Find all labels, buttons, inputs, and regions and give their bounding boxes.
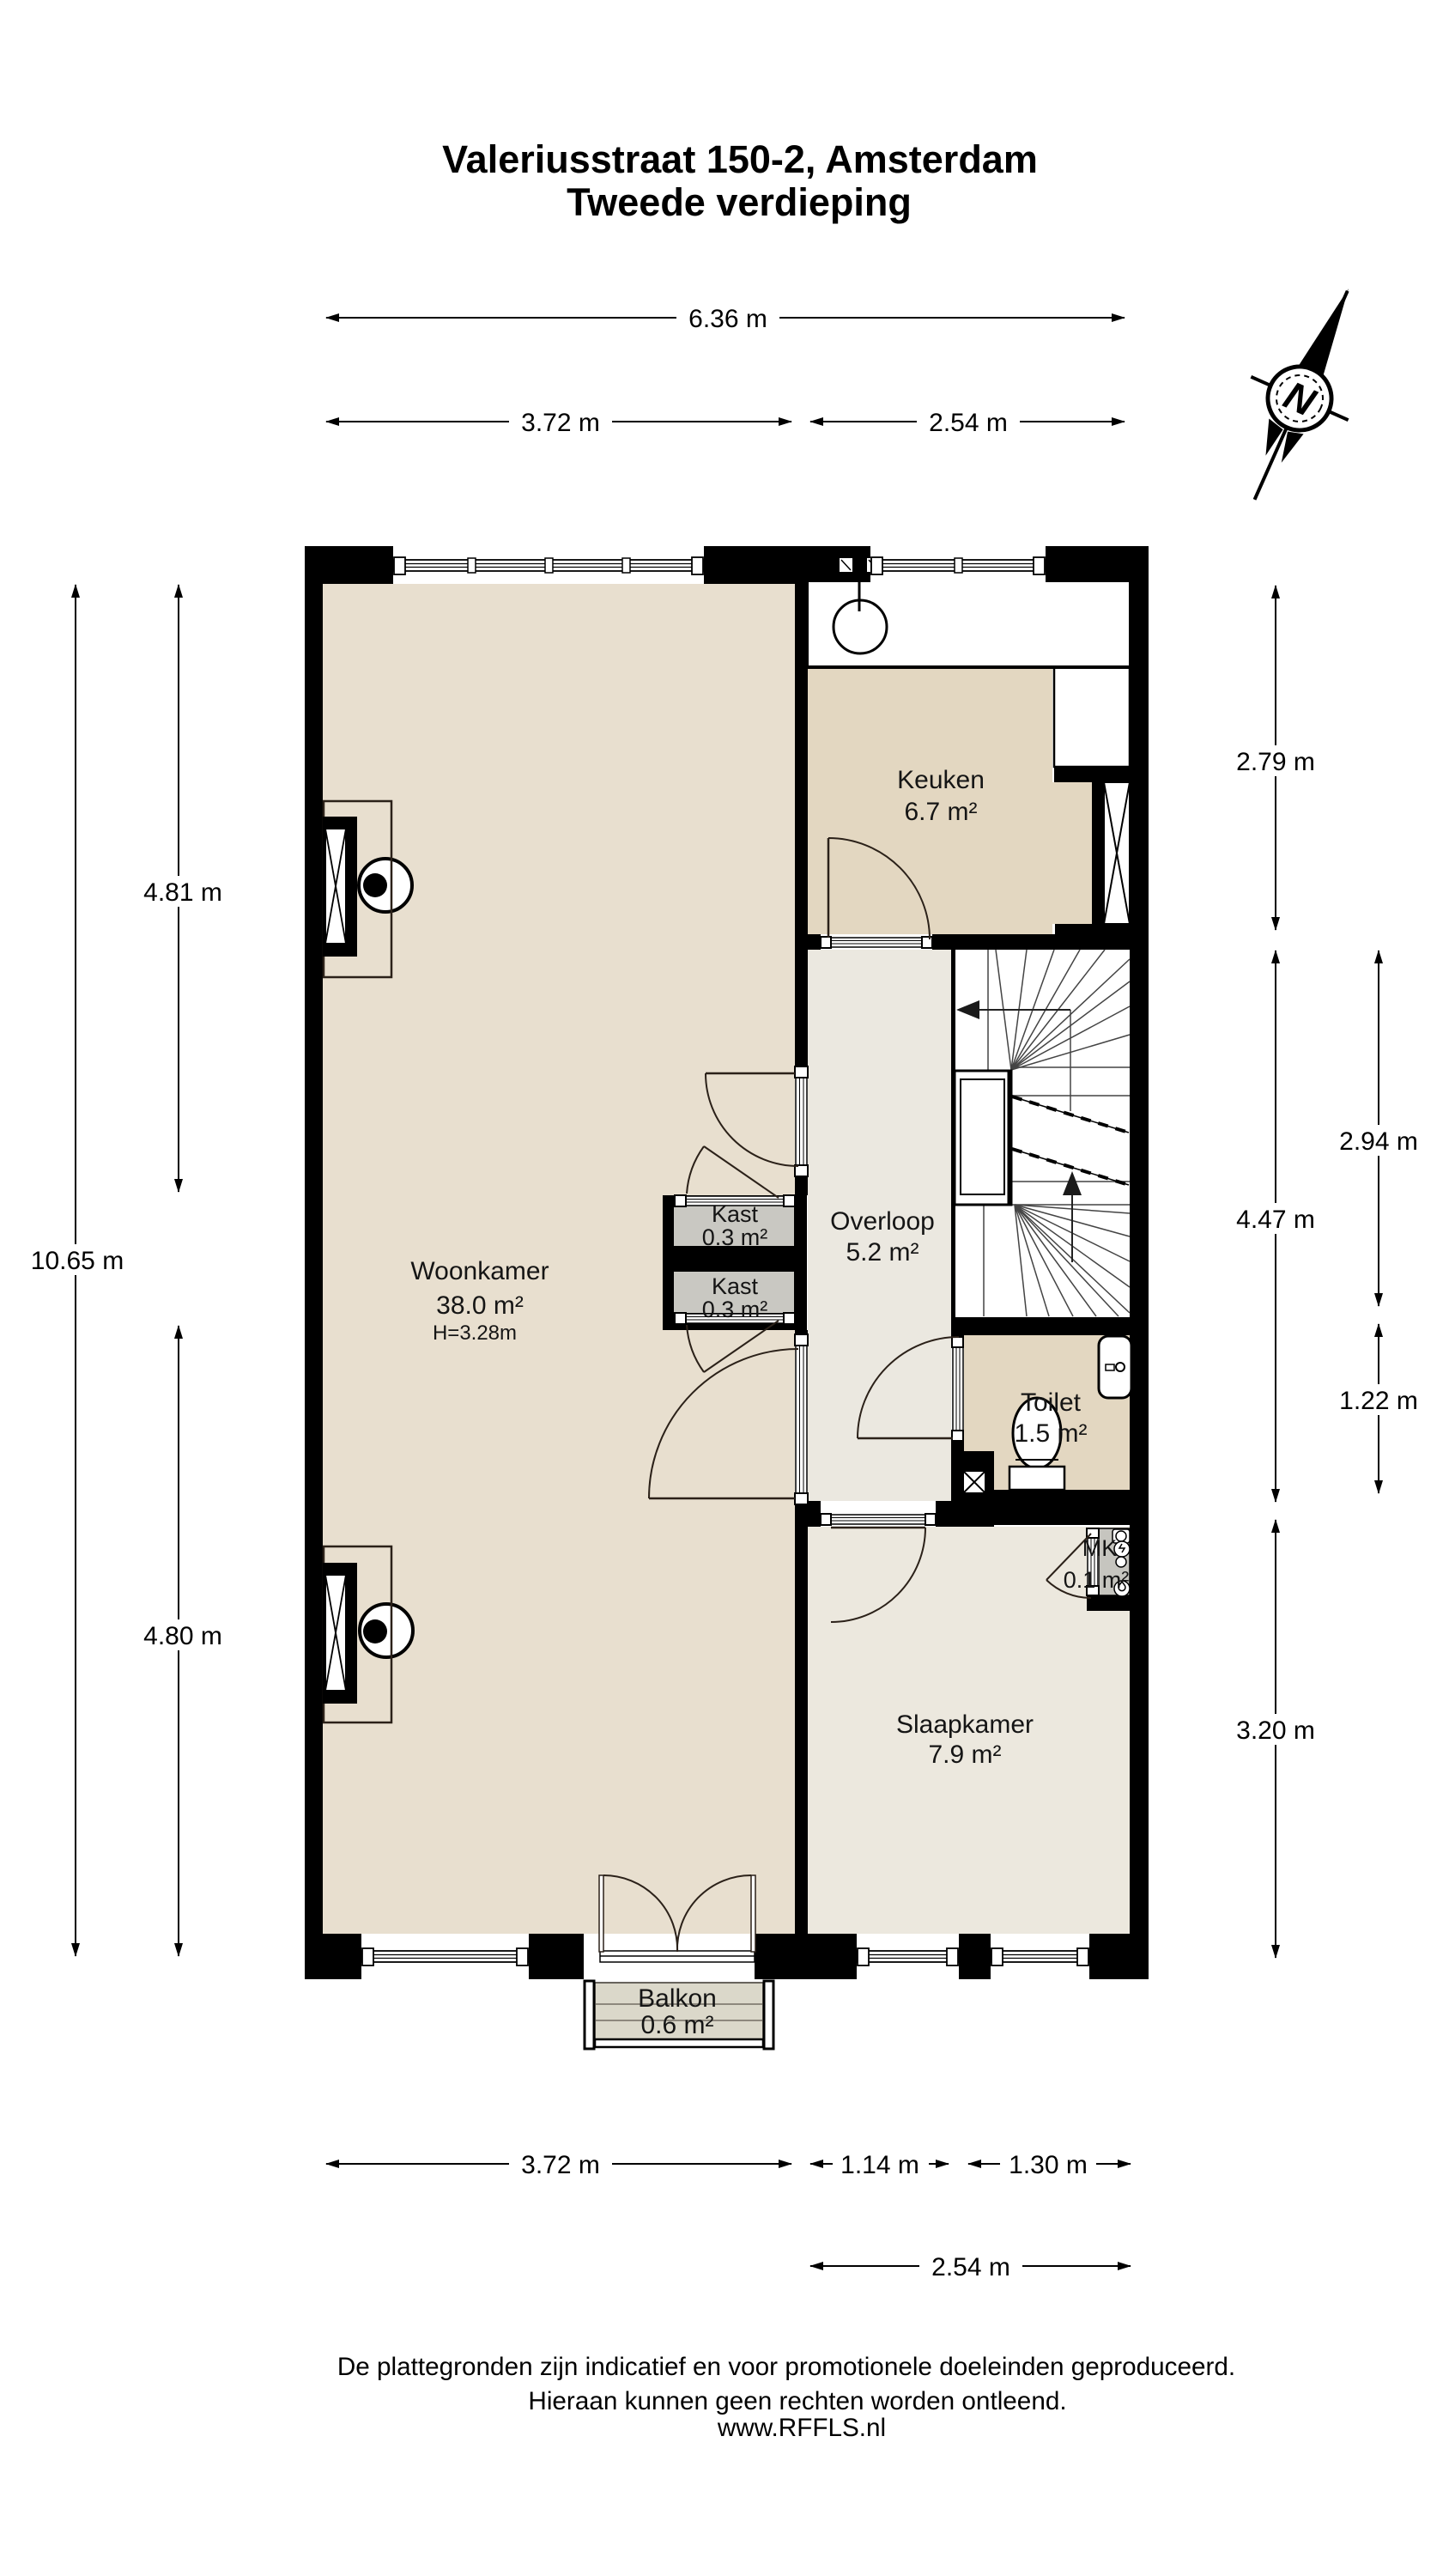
svg-text:2.54 m: 2.54 m [931, 2253, 1010, 2281]
svg-text:2.94 m: 2.94 m [1339, 1127, 1418, 1156]
svg-text:Kast: Kast [712, 1273, 759, 1299]
svg-text:Hieraan kunnen geen rechten wo: Hieraan kunnen geen rechten worden ontle… [528, 2387, 1066, 2415]
svg-text:3.72 m: 3.72 m [521, 409, 600, 437]
svg-text:5.2 m²: 5.2 m² [846, 1238, 919, 1267]
svg-text:Overloop: Overloop [830, 1207, 935, 1236]
svg-text:0.1 m²: 0.1 m² [1064, 1567, 1130, 1593]
svg-text:3.20 m: 3.20 m [1236, 1716, 1315, 1745]
svg-text:3.72 m: 3.72 m [521, 2151, 600, 2179]
svg-text:Woonkamer: Woonkamer [410, 1257, 549, 1285]
svg-text:4.81 m: 4.81 m [143, 878, 222, 907]
svg-text:4.80 m: 4.80 m [143, 1622, 222, 1650]
svg-text:Kast: Kast [712, 1201, 759, 1227]
svg-text:1.30 m: 1.30 m [1009, 2151, 1088, 2179]
svg-text:Keuken: Keuken [897, 766, 985, 794]
svg-text:6.7 m²: 6.7 m² [904, 798, 977, 826]
svg-text:Valeriusstraat 150-2, Amsterda: Valeriusstraat 150-2, Amsterdam [442, 137, 1038, 181]
svg-text:Toilet: Toilet [1021, 1388, 1082, 1417]
svg-text:www.RFFLS.nl: www.RFFLS.nl [717, 2414, 886, 2442]
svg-text:10.65 m: 10.65 m [31, 1247, 124, 1275]
svg-text:1.14 m: 1.14 m [840, 2151, 919, 2179]
svg-text:2.79 m: 2.79 m [1236, 748, 1315, 776]
svg-text:2.54 m: 2.54 m [929, 409, 1008, 437]
svg-text:1.22 m: 1.22 m [1339, 1387, 1418, 1415]
svg-text:7.9 m²: 7.9 m² [928, 1741, 1001, 1769]
svg-text:0.6 m²: 0.6 m² [640, 2011, 713, 2039]
svg-text:Slaapkamer: Slaapkamer [896, 1710, 1034, 1739]
svg-text:1.5 m²: 1.5 m² [1014, 1419, 1087, 1448]
svg-text:0.3 m²: 0.3 m² [702, 1224, 768, 1250]
svg-text:6.36 m: 6.36 m [688, 305, 767, 333]
svg-text:38.0 m²: 38.0 m² [436, 1291, 524, 1320]
svg-text:Balkon: Balkon [638, 1984, 717, 2013]
svg-text:4.47 m: 4.47 m [1236, 1206, 1315, 1234]
svg-text:De plattegronden zijn indicati: De plattegronden zijn indicatief en voor… [337, 2353, 1235, 2381]
svg-text:H=3.28m: H=3.28m [433, 1321, 517, 1345]
svg-text:Tweede verdieping: Tweede verdieping [567, 180, 912, 224]
svg-text:MK: MK [1082, 1535, 1118, 1561]
svg-text:0.3 m²: 0.3 m² [702, 1297, 768, 1322]
